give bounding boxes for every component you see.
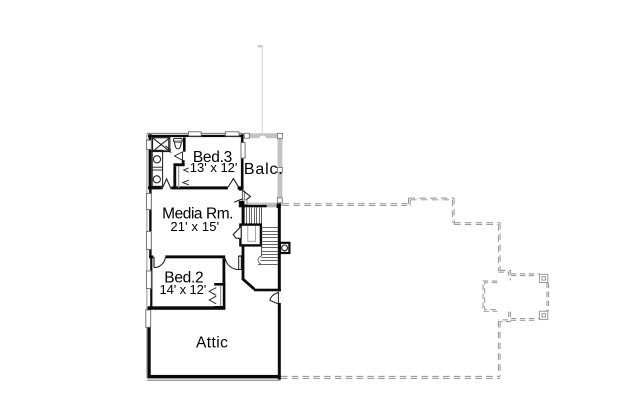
svg-text:Balc.: Balc. [244,161,284,178]
svg-text:Attic: Attic [196,334,228,351]
svg-text:21' x 15': 21' x 15' [170,219,219,234]
svg-text:14' x 12': 14' x 12' [159,282,206,297]
svg-text:13' x 12': 13' x 12' [190,160,238,175]
